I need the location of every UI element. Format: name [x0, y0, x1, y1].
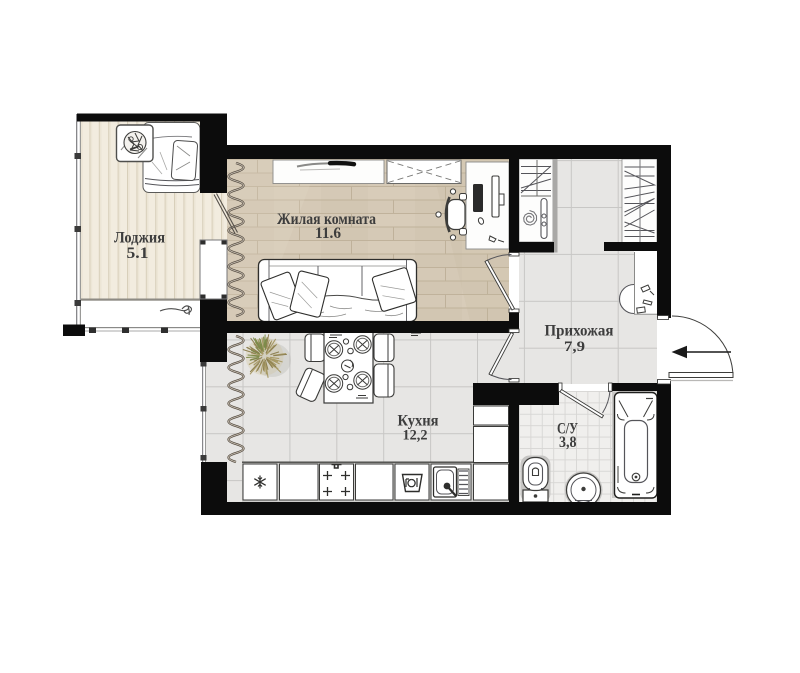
svg-text:Прихожая: Прихожая [545, 323, 614, 340]
svg-text:7,9: 7,9 [564, 339, 585, 355]
svg-text:5.1: 5.1 [127, 245, 149, 262]
svg-text:11.6: 11.6 [315, 225, 341, 242]
svg-text:3,8: 3,8 [559, 434, 577, 451]
svg-text:Лоджия: Лоджия [114, 230, 165, 247]
svg-text:12,2: 12,2 [403, 428, 428, 444]
